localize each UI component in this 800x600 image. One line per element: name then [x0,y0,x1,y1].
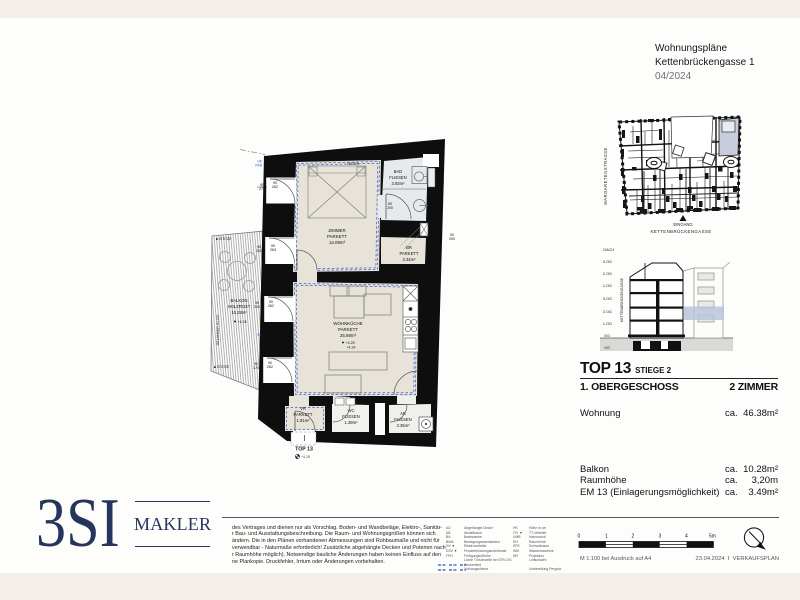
svg-text:1.91m²: 1.91m² [296,418,310,423]
svg-text:PARKETT: PARKETT [399,251,418,256]
svg-text:EG: EG [605,334,611,338]
svg-text:3.34m²: 3.34m² [402,257,416,262]
svg-text:3.OG: 3.OG [603,260,612,264]
svg-text:FLIESEN: FLIESEN [394,417,411,422]
svg-text:WOHNKÜCHE: WOHNKÜCHE [333,321,362,326]
svg-text:262: 262 [268,304,274,308]
svg-text:KETTENBRÜCKENGASSE: KETTENBRÜCKENGASSE [620,277,624,322]
svg-text:1.OG: 1.OG [603,284,612,288]
svg-text:DACH: DACH [603,248,614,252]
svg-text:303: 303 [254,305,260,309]
svg-text:3.36m²: 3.36m² [396,423,410,428]
svg-text:3: 3 [659,534,662,540]
svg-text:2: 2 [632,534,635,540]
svg-text:BALKON: BALKON [231,298,248,303]
svg-text:263: 263 [270,248,276,252]
svg-text:273: 273 [259,187,265,191]
svg-text:VR: VR [300,406,306,411]
svg-text:3.OG: 3.OG [603,297,612,301]
svg-text:KETTENBRÜCKENGASSE: KETTENBRÜCKENGASSE [650,229,711,234]
svg-text:HOLZROST: HOLZROST [228,304,251,309]
svg-text:3.93m²: 3.93m² [391,181,405,186]
svg-text:10.28m²: 10.28m² [231,310,247,315]
svg-text:250: 250 [438,181,444,185]
svg-text:14.09m²: 14.09m² [329,240,346,245]
svg-text:262: 262 [256,249,262,253]
svg-text:1.OG: 1.OG [603,322,612,326]
svg-text:FLIESEN: FLIESEN [389,175,406,180]
svg-text:25.88m²: 25.88m² [340,333,357,338]
svg-text:PARKETT: PARKETT [327,234,347,239]
svg-text:110/226: 110/226 [347,162,359,166]
svg-text:+4.28: +4.28 [301,455,310,459]
svg-text:262: 262 [272,185,278,189]
svg-text:EINGANG: EINGANG [673,222,692,227]
svg-text:■ STÜTZE: ■ STÜTZE [214,365,229,369]
svg-text:170: 170 [253,366,259,370]
svg-text:+4.24: +4.24 [346,346,355,350]
svg-text:BR: BR [406,245,412,250]
svg-text:90: 90 [257,333,261,337]
svg-text:ZIMMER: ZIMMER [328,228,345,233]
svg-text:1: 1 [605,534,608,540]
svg-text:2.OG: 2.OG [603,272,612,276]
svg-text:0: 0 [578,534,581,540]
svg-text:RFB: RFB [255,164,262,168]
svg-text:2.OG: 2.OG [603,310,612,314]
svg-text:FLIESEN: FLIESEN [342,414,359,419]
svg-text:262: 262 [267,365,273,369]
svg-text:■ STÜTZE: ■ STÜTZE [216,237,231,241]
svg-text:KG: KG [605,346,611,350]
svg-text:⚑ +4.26: ⚑ +4.26 [233,320,246,324]
svg-text:BAD: BAD [394,169,403,174]
svg-text:200: 200 [387,206,393,210]
svg-text:200: 200 [449,237,455,241]
svg-text:5m: 5m [709,534,716,540]
svg-text:PARKETT: PARKETT [338,327,358,332]
svg-text:GELÄNDER H=100: GELÄNDER H=100 [216,315,220,346]
svg-text:TOP 13: TOP 13 [295,447,313,453]
svg-text:1.39m²: 1.39m² [344,420,358,425]
svg-text:4: 4 [685,534,688,540]
svg-text:90: 90 [439,176,443,180]
svg-text:⚑ +4.25: ⚑ +4.25 [341,341,354,345]
svg-text:MARGARETENSTRASSE: MARGARETENSTRASSE [603,147,608,205]
